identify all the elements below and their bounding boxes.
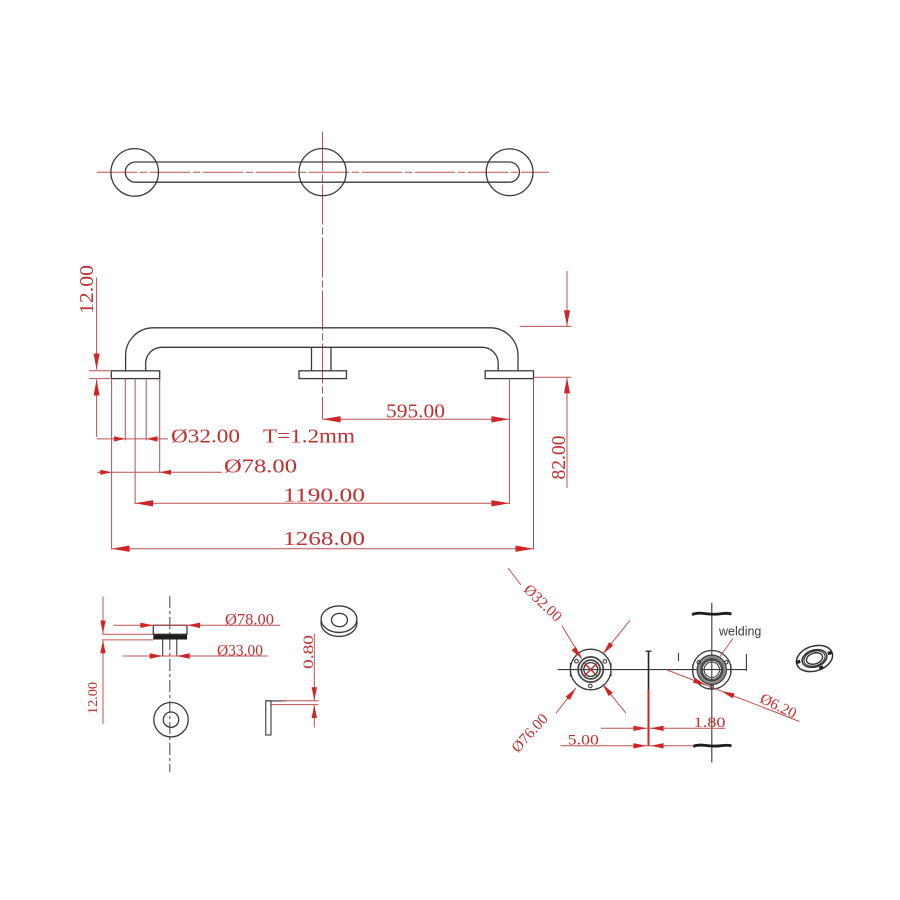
svg-text:Ø6.20: Ø6.20: [757, 690, 799, 722]
svg-text:Ø32.00: Ø32.00: [520, 581, 565, 625]
svg-text:Ø32.00: Ø32.00: [171, 426, 240, 448]
svg-text:1.80: 1.80: [694, 715, 726, 731]
svg-text:12.00: 12.00: [86, 682, 101, 714]
svg-text:12.00: 12.00: [76, 265, 98, 314]
svg-text:82.00: 82.00: [548, 436, 570, 480]
svg-text:595.00: 595.00: [386, 401, 445, 423]
svg-text:Ø78.00: Ø78.00: [224, 456, 297, 478]
svg-text:0.80: 0.80: [301, 635, 317, 669]
svg-text:1268.00: 1268.00: [283, 528, 365, 550]
svg-text:Ø33.00: Ø33.00: [217, 643, 263, 660]
svg-text:5.00: 5.00: [568, 732, 599, 748]
svg-text:1190.00: 1190.00: [283, 485, 365, 507]
svg-text:welding: welding: [718, 625, 761, 639]
svg-text:Ø76.00: Ø76.00: [508, 710, 552, 756]
svg-text:T=1.2mm: T=1.2mm: [263, 426, 356, 448]
svg-text:Ø78.00: Ø78.00: [225, 612, 274, 629]
